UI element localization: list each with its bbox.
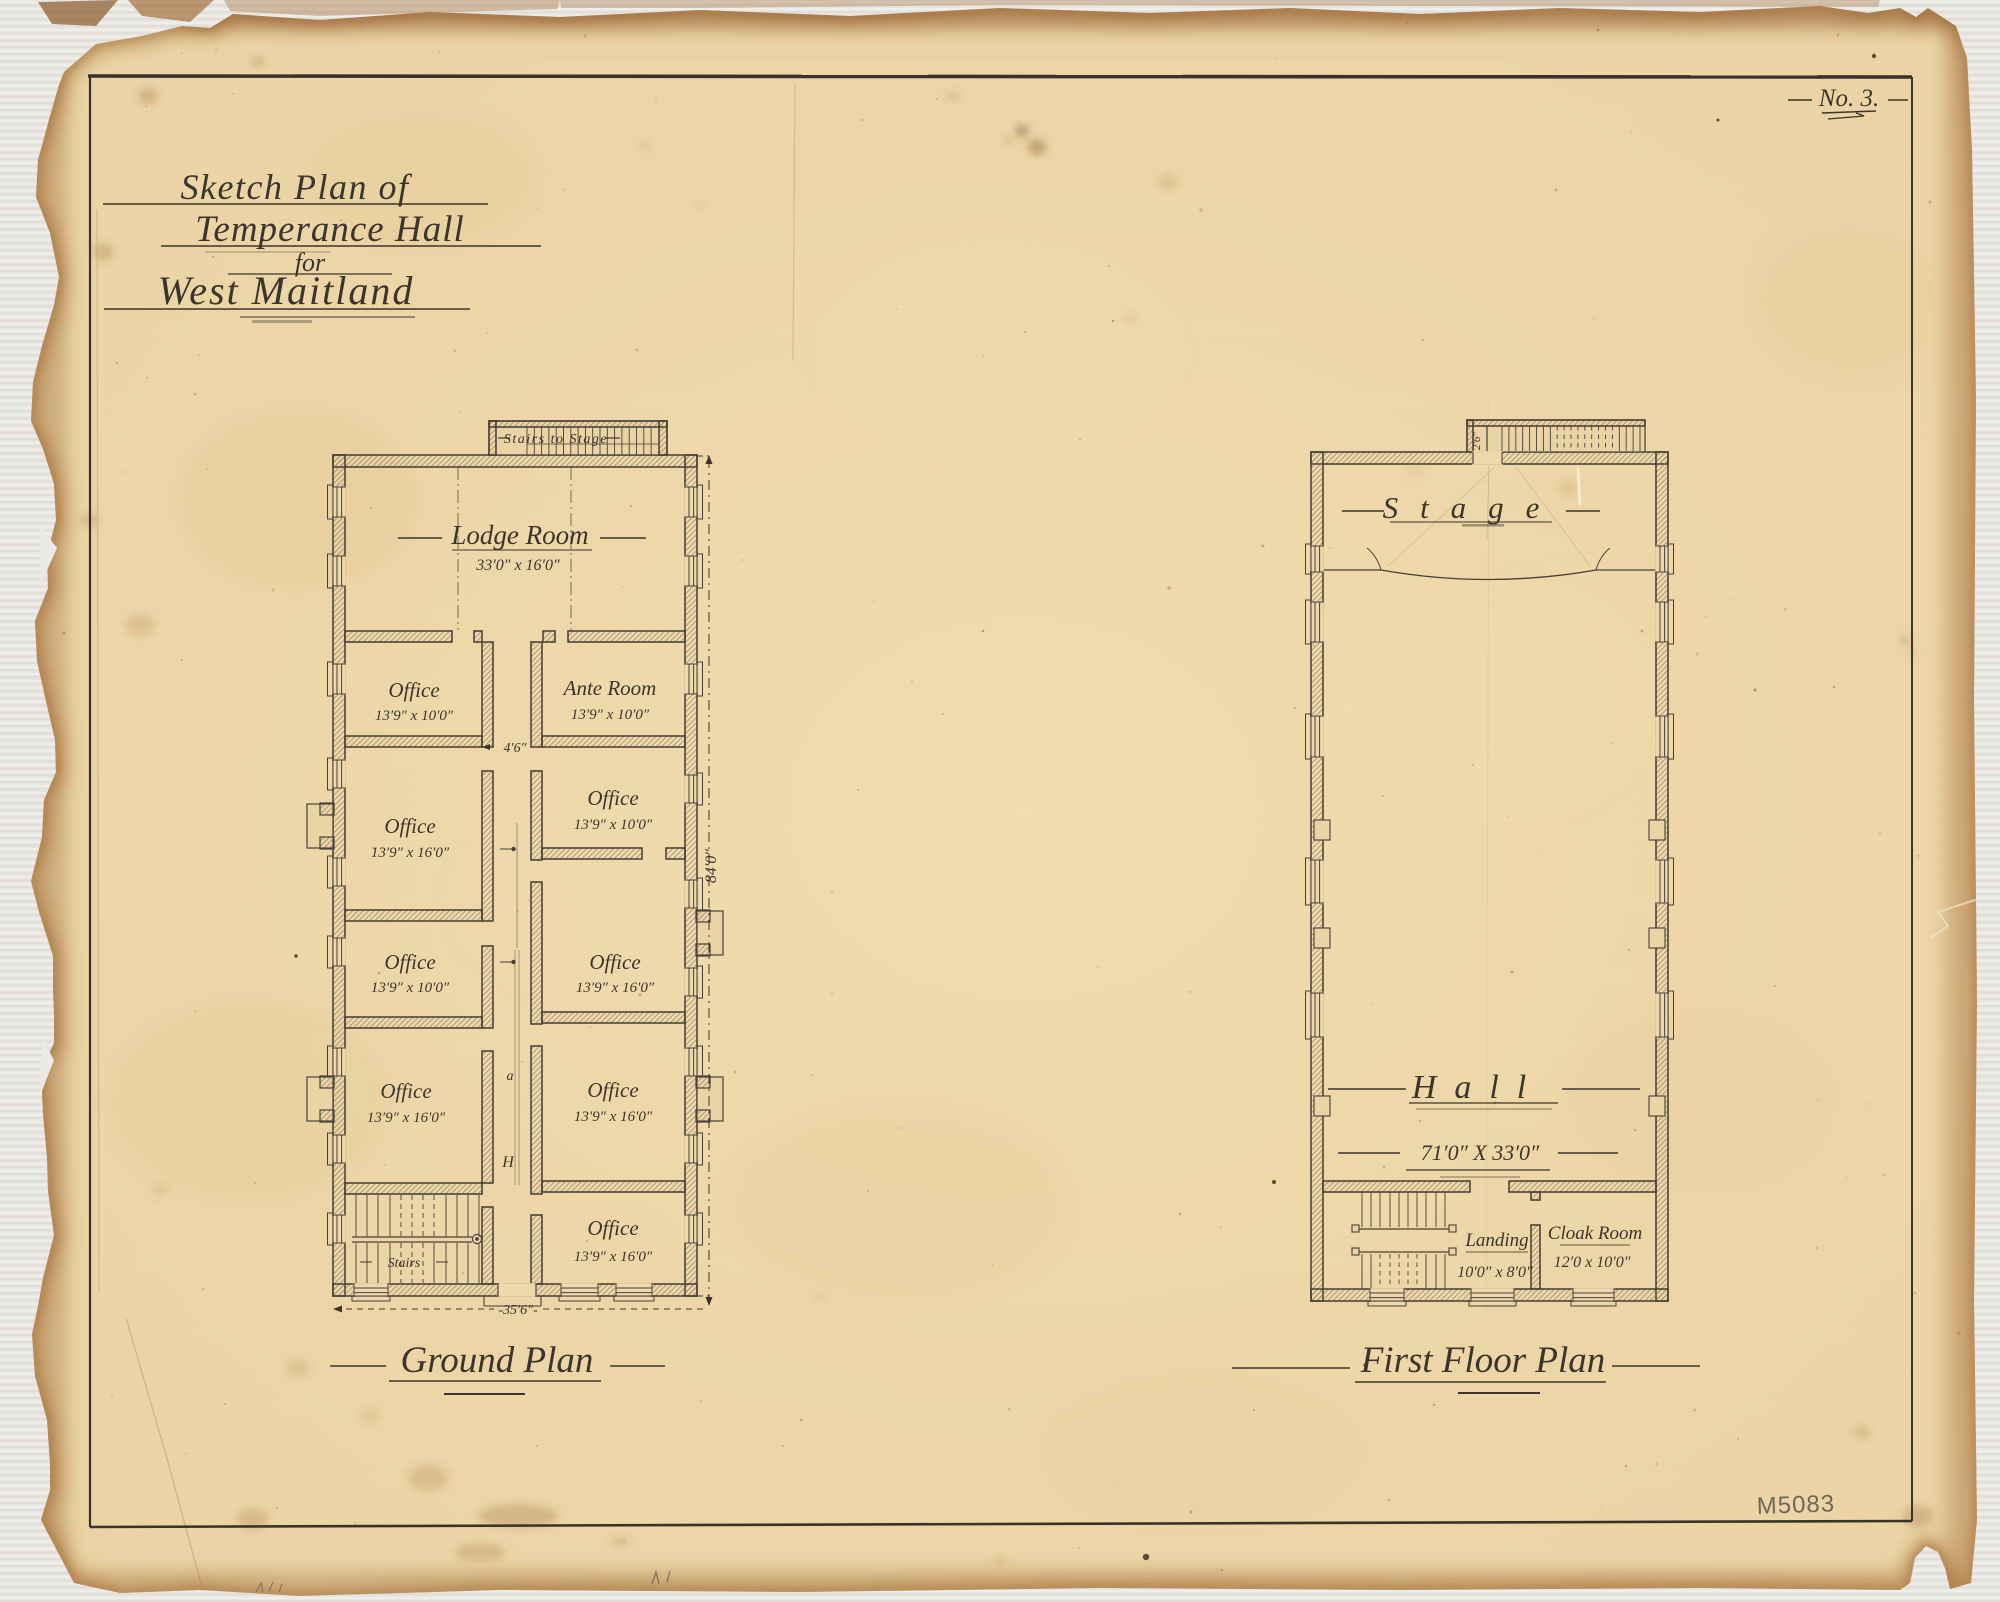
svg-text:13′9″ x 10′0″: 13′9″ x 10′0″ bbox=[375, 708, 454, 724]
svg-text:2′6″: 2′6″ bbox=[1471, 432, 1483, 450]
svg-text:Office: Office bbox=[589, 950, 640, 974]
svg-text:84′0″: 84′0″ bbox=[703, 849, 720, 884]
svg-text:Office: Office bbox=[388, 678, 439, 702]
svg-text:Stairs: Stairs bbox=[388, 1256, 421, 1271]
svg-text:13′9″ x 16′0″: 13′9″ x 16′0″ bbox=[371, 845, 450, 861]
svg-text:Stage: Stage bbox=[1383, 490, 1562, 525]
svg-text:Hall: Hall bbox=[1411, 1069, 1544, 1106]
svg-text:Office: Office bbox=[587, 786, 638, 810]
svg-text:First Floor Plan: First Floor Plan bbox=[1360, 1340, 1606, 1381]
svg-text:33′0″ x 16′0″: 33′0″ x 16′0″ bbox=[475, 557, 560, 574]
svg-text:Sketch Plan of: Sketch Plan of bbox=[181, 167, 413, 207]
svg-text:a: a bbox=[507, 1069, 514, 1084]
svg-text:Temperance Hall: Temperance Hall bbox=[195, 209, 465, 250]
svg-text:12′0 x 10′0″: 12′0 x 10′0″ bbox=[1554, 1254, 1631, 1271]
svg-text:Landing: Landing bbox=[1464, 1230, 1528, 1251]
svg-text:Office: Office bbox=[384, 950, 435, 974]
svg-text:No. 3.: No. 3. bbox=[1818, 85, 1879, 112]
svg-text:Lodge Room: Lodge Room bbox=[450, 520, 588, 550]
svg-text:West Maitland: West Maitland bbox=[158, 268, 415, 313]
svg-text:71′0″ X 33′0″: 71′0″ X 33′0″ bbox=[1421, 1140, 1540, 1165]
svg-text:13′9″ x 16′0″: 13′9″ x 16′0″ bbox=[574, 1249, 653, 1265]
svg-text:13′9″ x 10′0″: 13′9″ x 10′0″ bbox=[574, 817, 653, 833]
svg-text:M5083: M5083 bbox=[1756, 1490, 1835, 1520]
svg-text:13′9″ x 10′0″: 13′9″ x 10′0″ bbox=[371, 980, 450, 996]
svg-text:H: H bbox=[501, 1154, 515, 1171]
svg-text:13′9″ x 16′0″: 13′9″ x 16′0″ bbox=[574, 1109, 653, 1125]
svg-text:Office: Office bbox=[587, 1216, 638, 1240]
svg-text:10′0″ x 8′0″: 10′0″ x 8′0″ bbox=[1457, 1264, 1533, 1281]
svg-text:Cloak Room: Cloak Room bbox=[1548, 1223, 1642, 1244]
svg-text:Office: Office bbox=[380, 1079, 431, 1103]
svg-text:13′9″ x 16′0″: 13′9″ x 16′0″ bbox=[576, 980, 655, 996]
svg-text:Stairs to Stage: Stairs to Stage bbox=[504, 432, 608, 447]
svg-text:Ground Plan: Ground Plan bbox=[401, 1340, 594, 1381]
svg-text:-35′6″-: -35′6″- bbox=[498, 1303, 538, 1318]
svg-text:4′6″: 4′6″ bbox=[504, 741, 527, 756]
svg-text:Ante Room: Ante Room bbox=[562, 676, 657, 700]
svg-text:Office: Office bbox=[384, 814, 435, 838]
svg-text:Office: Office bbox=[587, 1078, 638, 1102]
svg-text:13′9″ x 16′0″: 13′9″ x 16′0″ bbox=[367, 1110, 446, 1126]
svg-text:13′9″ x 10′0″: 13′9″ x 10′0″ bbox=[571, 707, 650, 723]
